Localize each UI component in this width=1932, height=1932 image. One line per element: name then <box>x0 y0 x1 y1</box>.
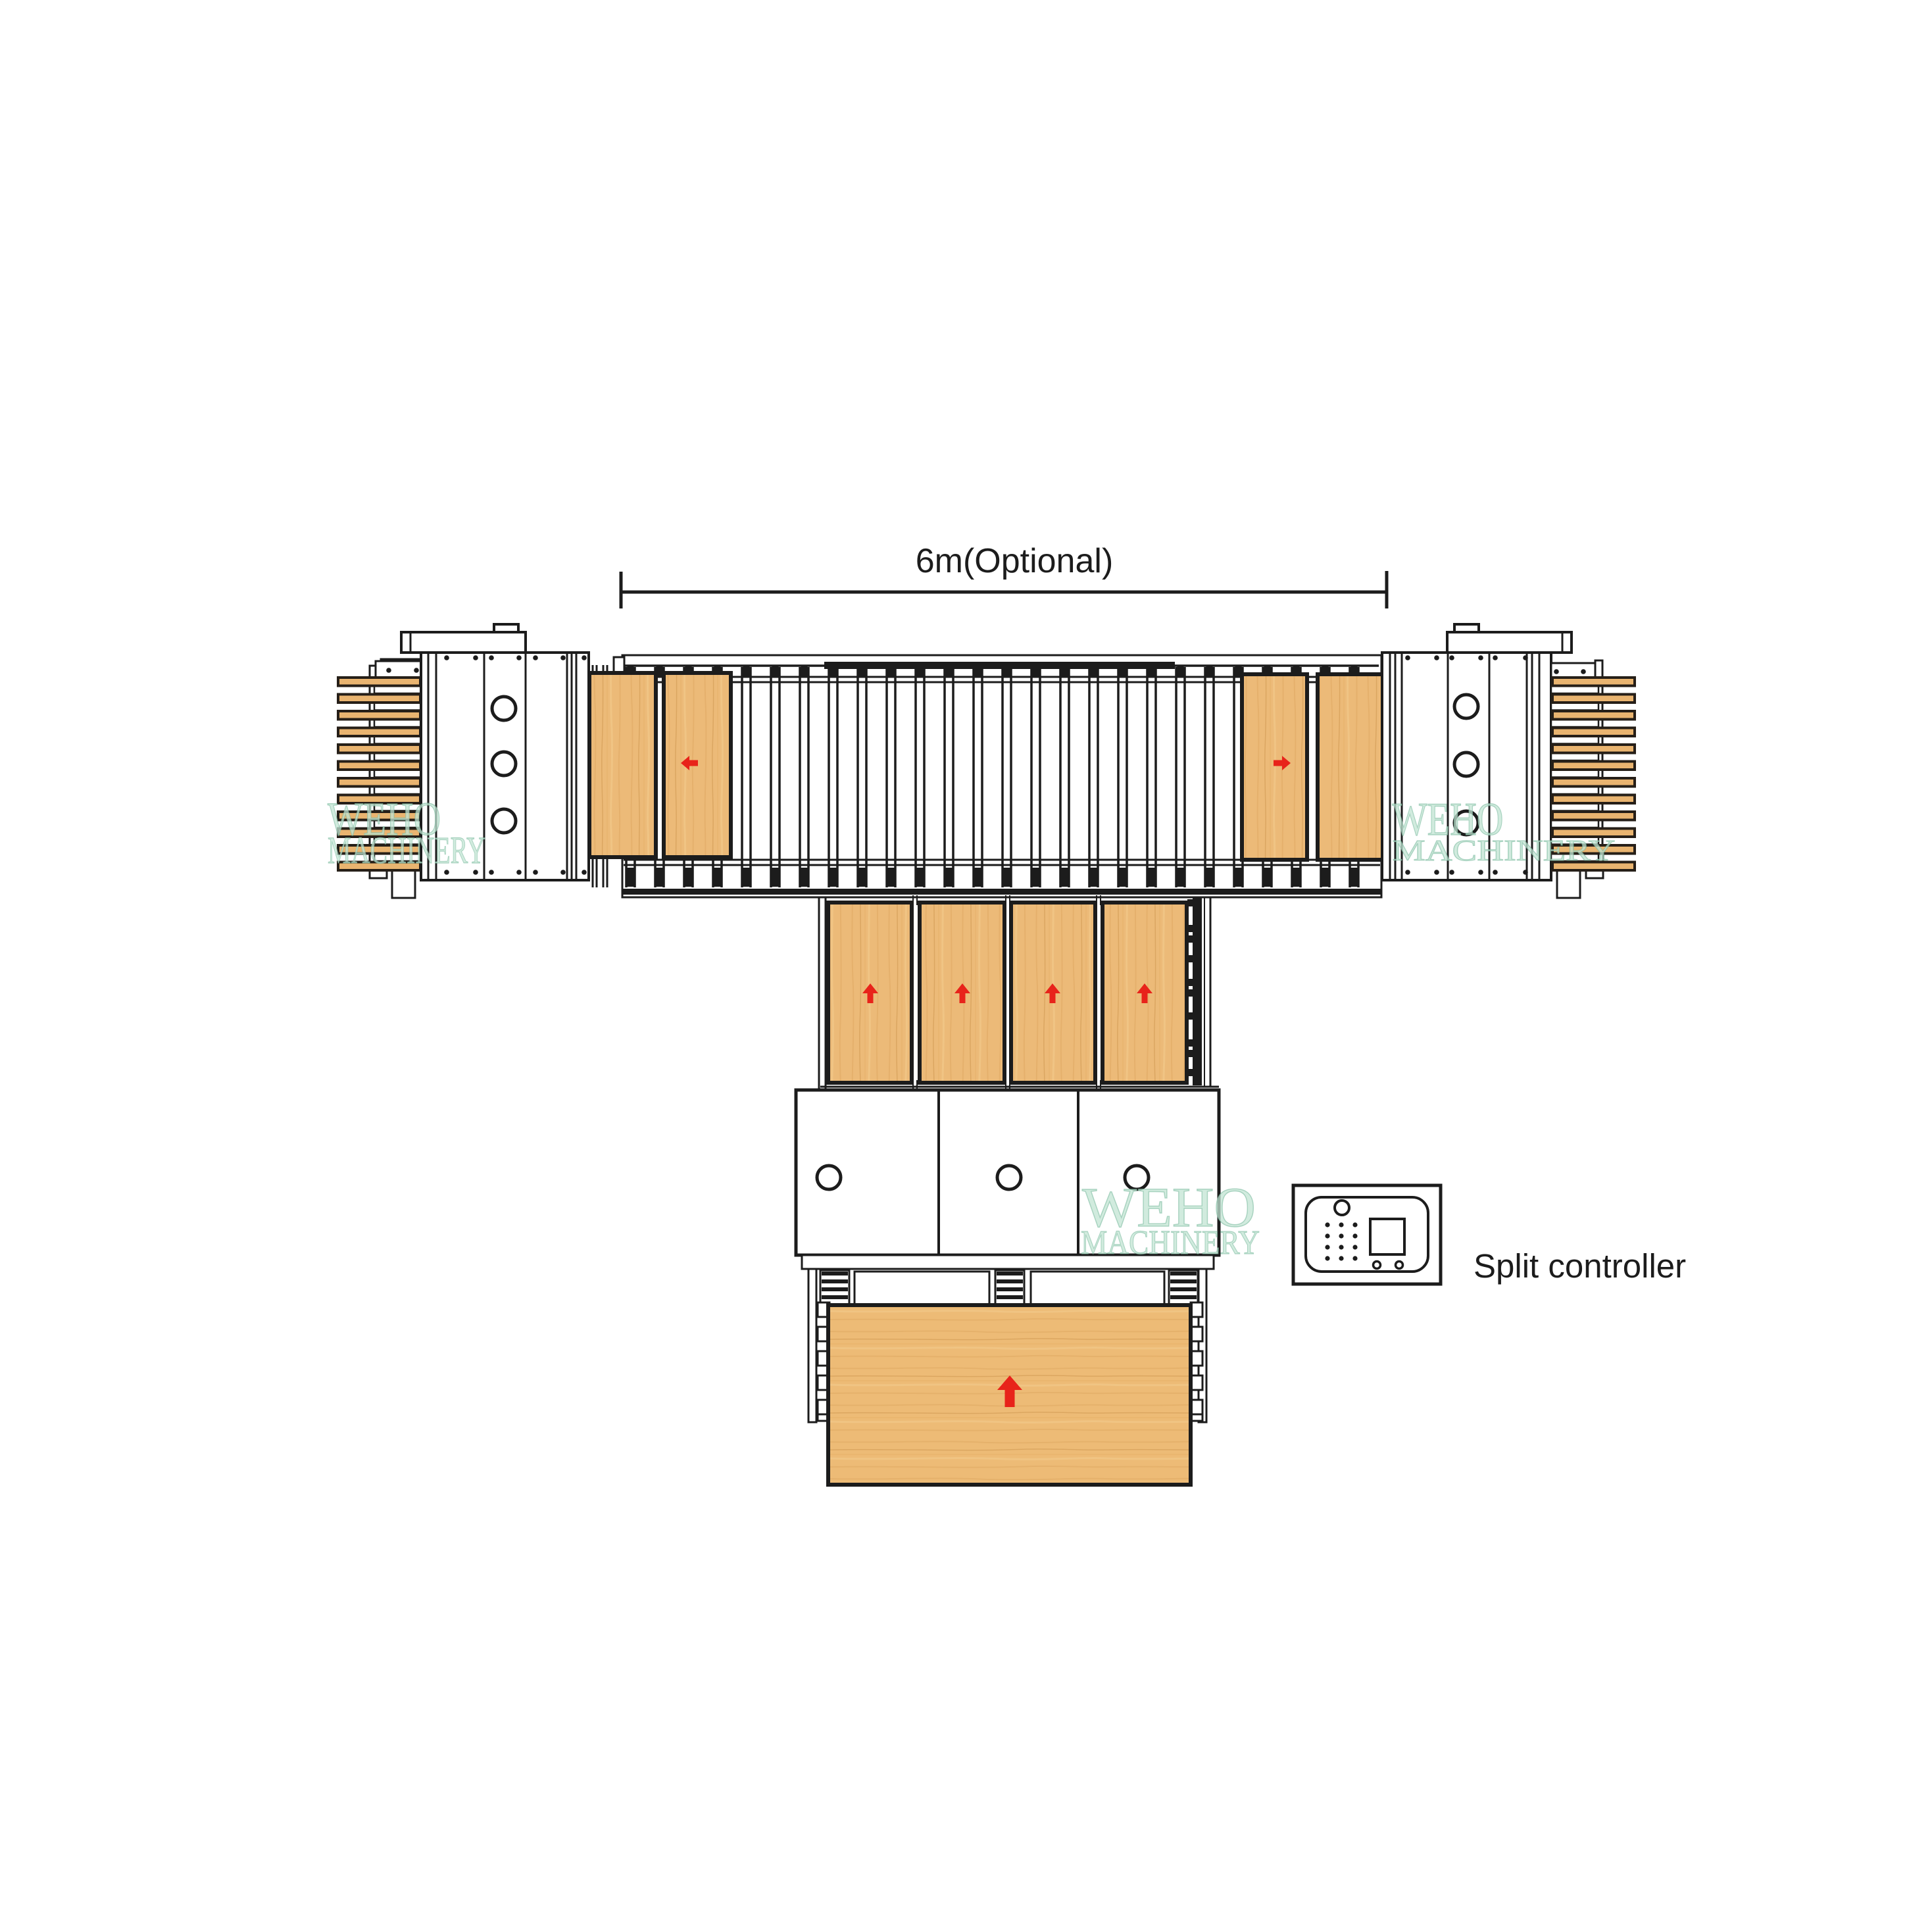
svg-text:6m(Optional): 6m(Optional) <box>916 542 1114 580</box>
svg-text:MACHINERY: MACHINERY <box>328 829 485 872</box>
svg-text:MACHINERY: MACHINERY <box>1081 1224 1260 1262</box>
svg-text:MACHINERY: MACHINERY <box>1393 834 1616 867</box>
svg-text:Split controller: Split controller <box>1474 1247 1686 1285</box>
